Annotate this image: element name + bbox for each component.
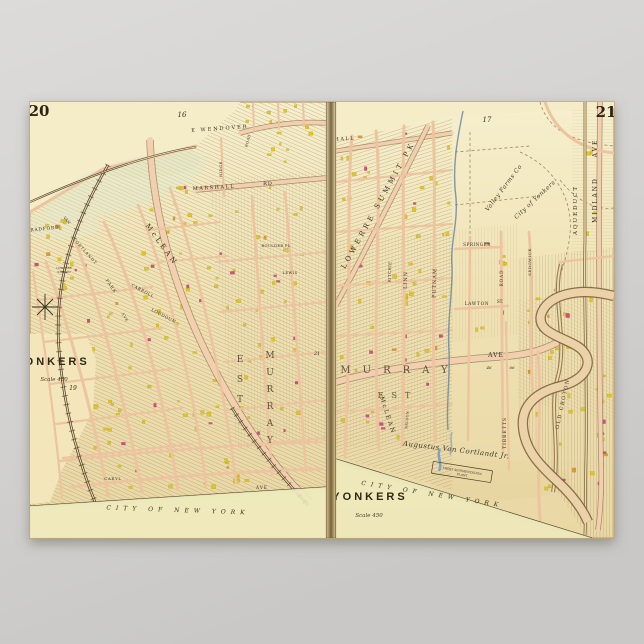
map-label-springer: SPRINGER [463,242,491,247]
building-marker [154,403,157,407]
building-marker [381,427,385,429]
building-marker [504,262,507,265]
building-marker [605,454,607,456]
building-marker [358,136,362,138]
building-marker [366,421,369,424]
building-marker [47,235,50,239]
building-marker [225,458,228,462]
map-label-yonkers: YONKERS [332,491,407,503]
building-marker [371,411,374,413]
map-label-ave: AVE [592,139,599,159]
map-label-lewis: LEWIS [282,271,297,275]
building-marker [286,149,289,151]
building-marker [35,263,39,266]
building-marker [267,154,271,156]
building-marker [417,353,420,357]
building-marker [548,356,551,360]
building-marker [261,290,264,293]
building-marker [144,296,148,300]
building-marker [581,408,585,412]
building-marker [300,206,302,210]
building-marker [550,351,553,354]
building-marker [108,428,111,431]
page-gutter [325,102,337,538]
building-marker [572,468,576,472]
map-label-scale-450: Scale 450 [40,377,68,383]
building-marker [284,301,286,303]
building-marker [392,349,397,351]
building-marker [272,337,275,341]
map-label-st: ST. [497,299,503,304]
building-marker [201,410,205,414]
building-marker [309,132,313,136]
building-marker [179,186,183,190]
building-marker [94,404,99,408]
building-marker [369,351,373,354]
building-marker [214,285,218,288]
building-marker [246,120,249,123]
map-label-19: 19 [69,385,77,392]
building-marker [169,485,173,489]
building-marker [116,302,119,305]
map-label-tibbetts: TIBBETTS [502,417,508,449]
building-marker [220,253,222,255]
building-marker [603,375,605,377]
building-marker [131,343,133,347]
building-marker [393,275,397,279]
building-marker [607,394,612,397]
building-marker [413,202,416,204]
map-label-16: 16 [178,111,187,119]
building-marker [371,326,374,329]
building-marker [446,232,449,236]
plate-number-right: 21 [596,103,617,121]
building-marker [293,282,296,285]
building-marker [244,376,247,379]
building-marker [413,281,416,285]
building-marker [264,236,267,240]
building-marker [118,409,121,412]
building-marker [58,258,61,262]
building-marker [590,472,594,476]
map-label-ave: AVE [255,485,268,490]
plate-number-left: 20 [29,102,50,120]
building-marker [272,281,275,284]
building-marker [397,435,400,439]
building-marker [305,126,309,129]
building-marker [420,186,424,189]
building-marker [107,316,109,318]
building-marker [216,277,219,279]
building-marker [366,415,369,418]
building-marker [476,328,478,332]
building-marker [559,443,561,446]
building-marker [104,428,109,431]
building-marker [156,324,159,328]
building-marker [151,265,154,268]
map-label-murray: MURRAY [340,365,459,376]
building-marker [183,414,188,417]
map-label-rd: RD [263,181,273,187]
building-marker [129,486,133,489]
building-marker [209,215,213,217]
aqueduct-line [585,102,587,535]
building-marker [227,466,229,468]
building-marker [276,280,280,282]
building-marker [94,446,97,449]
building-marker [207,412,211,416]
road [278,103,279,128]
map-label-66: 66 [509,365,515,370]
building-marker [586,232,588,236]
building-marker [364,167,367,171]
building-marker [341,418,344,422]
building-marker [173,217,175,221]
yonkers-map-poster: 16E WENDOVERROADRIDGEMARSHALLRDRADFORDVA… [0,0,644,644]
building-marker [108,441,111,444]
building-marker [409,292,413,296]
building-marker [245,479,250,482]
building-marker [426,383,429,386]
building-marker [75,269,77,271]
building-marker [185,190,188,193]
poster-mockup: 16E WENDOVERROADRIDGEMARSHALLRDRADFORDVA… [0,0,644,644]
building-marker [87,319,90,323]
building-marker [352,172,356,175]
map-label-boulder-pl: BOULDER PL [261,244,290,248]
building-marker [545,487,549,490]
building-marker [280,143,282,146]
building-marker [237,479,240,482]
building-marker [347,156,349,160]
road [538,352,540,520]
building-marker [416,235,420,238]
building-marker [409,263,413,265]
building-marker [188,214,192,217]
building-marker [358,299,361,303]
map-label-aqueduct: AQUEDUCT [573,185,579,236]
building-marker [236,300,241,303]
map-label-ridge: RIDGE [218,161,223,177]
road [253,104,254,131]
map-label-station: STATION [57,270,71,274]
map-label-17: 17 [483,116,492,124]
building-marker [448,202,451,205]
building-marker [442,233,444,235]
building-marker [277,132,281,134]
building-marker [274,275,277,277]
building-marker [178,400,180,402]
building-marker [227,306,229,310]
building-marker [341,157,343,160]
building-marker [379,423,383,426]
map-page-left: 16E WENDOVERROADRIDGEMARSHALLRDRADFORDVA… [14,102,326,538]
building-marker [294,213,298,215]
building-marker [111,403,114,405]
building-marker [368,171,370,173]
building-marker [590,298,593,302]
map-label-21: 21 [313,351,320,357]
building-marker [442,296,446,298]
building-marker [148,338,151,341]
building-marker [46,253,50,256]
map-label-road: ROAD [499,270,504,287]
building-marker [184,186,186,189]
building-marker [243,324,246,326]
building-marker [439,335,443,338]
building-marker [142,251,146,255]
building-marker [186,288,190,291]
building-marker [340,356,343,359]
building-marker [277,208,280,210]
building-marker [129,366,132,369]
building-marker [216,406,219,408]
building-marker [419,269,422,273]
map-label-ritchie: RITCHIE [387,261,393,282]
building-marker [566,313,570,317]
map-label-sedgwick: SEDGWICK [527,248,532,276]
building-marker [248,416,250,419]
map-label-46: 46 [485,365,492,370]
building-marker [180,253,182,255]
map-label-lawton: LAWTON [465,301,490,306]
building-marker [430,176,433,180]
building-marker [121,442,125,445]
building-marker [259,343,261,347]
map-label-scale-450: Scale 450 [355,513,383,519]
building-marker [280,408,283,411]
building-marker [271,148,275,152]
building-marker [147,385,151,388]
building-marker [207,267,211,269]
map-label-linn: LINN [403,271,410,289]
building-marker [548,485,551,488]
building-marker [295,381,298,384]
map-label-caryl: CARYL [104,476,121,481]
building-marker [284,249,287,252]
building-marker [109,313,112,315]
building-marker [150,209,153,212]
map-label-ave: AVE [487,352,504,359]
building-marker [412,208,416,212]
building-marker [297,411,301,415]
building-marker [284,161,286,163]
building-marker [236,211,239,213]
building-marker [548,315,550,318]
building-marker [536,298,540,300]
building-marker [342,198,345,201]
building-marker [118,465,121,467]
building-marker [144,267,148,270]
building-marker [569,410,573,413]
building-marker [284,429,286,432]
building-marker [284,109,287,112]
building-marker [294,105,297,108]
map-label-putnam: PUTNAM [431,268,438,298]
building-marker [256,235,260,238]
building-marker [212,485,216,489]
road [303,102,304,126]
building-marker [142,420,145,423]
building-marker [70,277,74,279]
map-label-est: EST [237,355,244,405]
building-marker [230,271,235,274]
building-marker [108,400,112,403]
building-marker [193,352,197,354]
building-marker [209,422,213,424]
building-marker [164,336,168,339]
building-marker [246,105,249,107]
map-label-midland: MIDLAND [592,177,599,223]
building-marker [267,111,271,114]
building-marker [93,347,95,351]
building-marker [425,349,429,352]
building-marker [480,327,484,329]
building-marker [447,146,449,150]
